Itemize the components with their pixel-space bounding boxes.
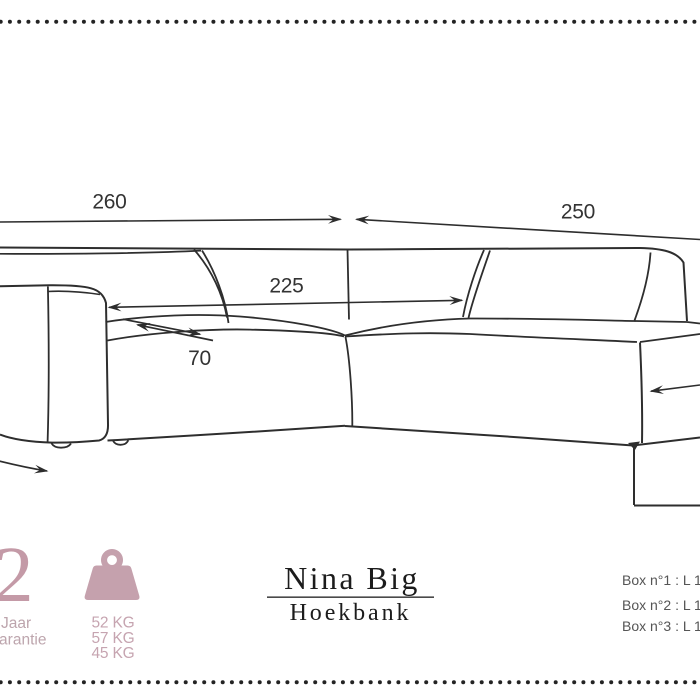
svg-text:Garantie: Garantie — [0, 632, 46, 649]
svg-text:70: 70 — [188, 347, 211, 370]
svg-text:45 KG: 45 KG — [92, 645, 135, 662]
svg-text:225: 225 — [269, 275, 303, 298]
svg-text:260: 260 — [92, 191, 126, 214]
svg-text:250: 250 — [561, 201, 595, 224]
svg-text:Box n°1 : L 10: Box n°1 : L 10 — [622, 572, 700, 588]
svg-text:Nina Big: Nina Big — [284, 560, 420, 596]
svg-text:Hoekbank: Hoekbank — [290, 600, 412, 626]
svg-text:Jaar: Jaar — [1, 615, 31, 632]
svg-text:2: 2 — [0, 532, 34, 619]
svg-text:Box n°2 : L 10: Box n°2 : L 10 — [622, 597, 700, 613]
svg-text:Box n°3 : L 10: Box n°3 : L 10 — [622, 618, 700, 634]
svg-text:52 KG: 52 KG — [92, 614, 135, 631]
